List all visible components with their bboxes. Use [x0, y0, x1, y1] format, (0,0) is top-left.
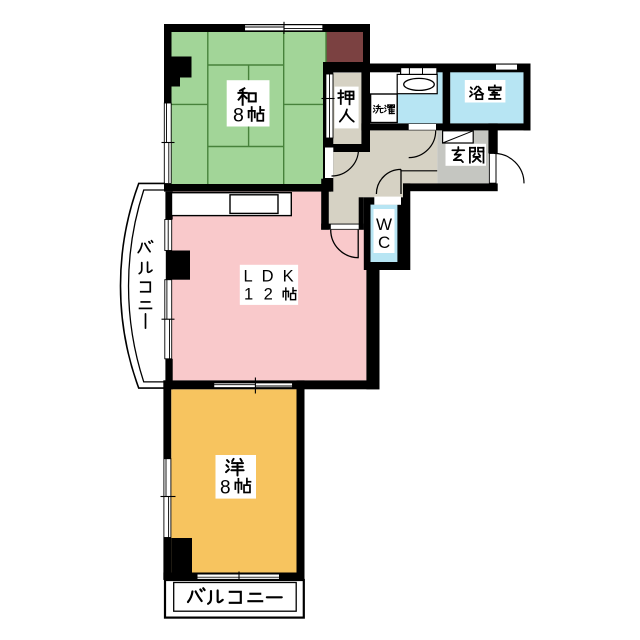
- svg-text:C: C: [378, 233, 390, 252]
- svg-text:8: 8: [233, 104, 244, 126]
- svg-text:12: 12: [244, 285, 283, 303]
- svg-text:LDK: LDK: [244, 268, 303, 286]
- svg-text:W: W: [376, 215, 392, 234]
- svg-text:8: 8: [220, 478, 231, 499]
